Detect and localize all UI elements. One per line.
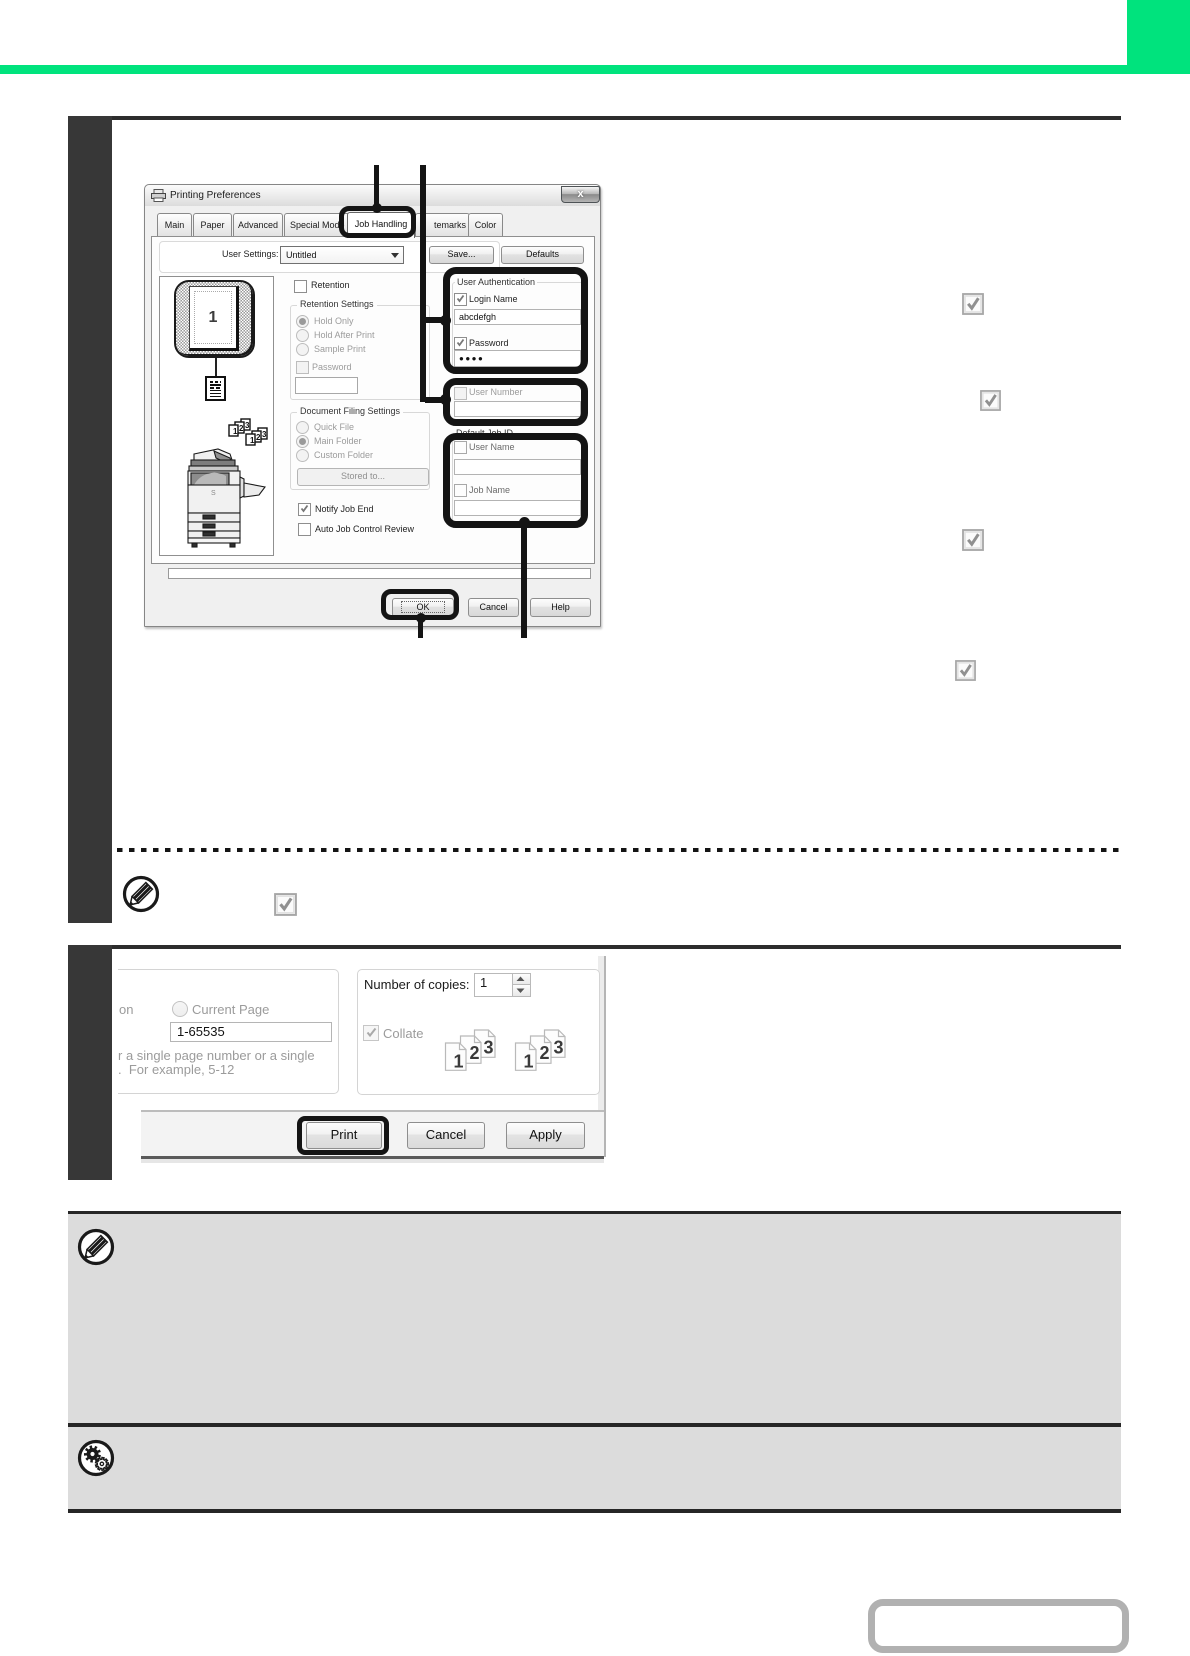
svg-text:1: 1: [233, 427, 238, 436]
svg-text:2: 2: [540, 1043, 550, 1063]
svg-text:3: 3: [262, 430, 267, 439]
svg-text:1: 1: [250, 436, 255, 445]
svg-text:2: 2: [256, 433, 261, 442]
svg-text:1: 1: [524, 1052, 534, 1072]
svg-text:2: 2: [239, 424, 244, 433]
svg-text:2: 2: [470, 1043, 480, 1063]
svg-text:1: 1: [454, 1052, 464, 1072]
svg-text:S: S: [211, 490, 216, 497]
svg-text:3: 3: [554, 1038, 564, 1058]
svg-text:3: 3: [484, 1038, 494, 1058]
